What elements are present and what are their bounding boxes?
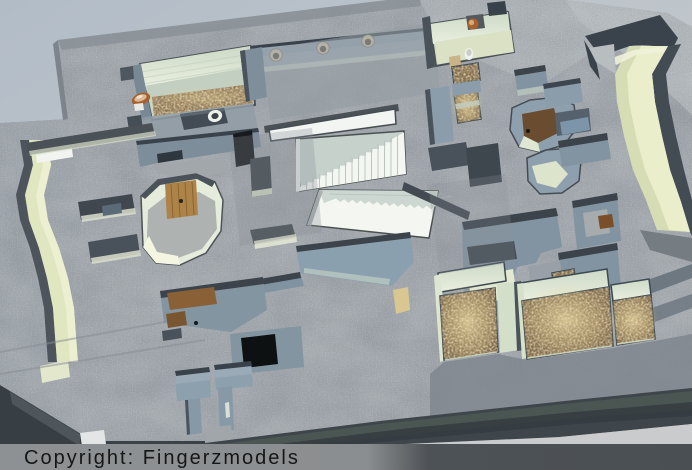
svg-text:Copyright: Fingerzmodels: Copyright: Fingerzmodels — [24, 447, 300, 469]
